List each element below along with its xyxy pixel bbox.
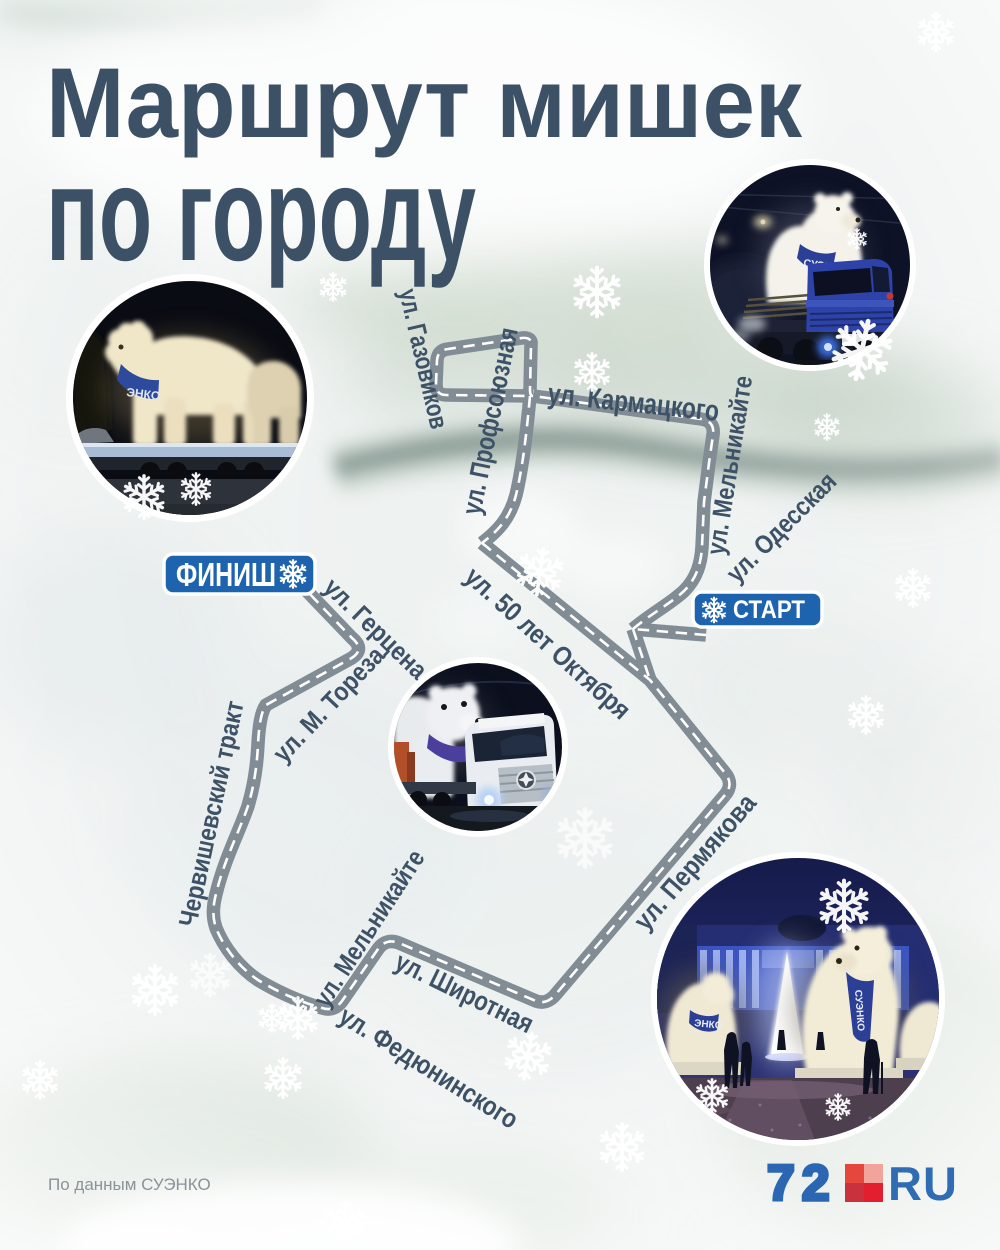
- svg-text:RU: RU: [888, 1157, 958, 1210]
- svg-text:По данным СУЭНКО: По данным СУЭНКО: [48, 1175, 211, 1194]
- svg-text:ФИНИШ: ФИНИШ: [176, 556, 276, 593]
- svg-text:72: 72: [767, 1155, 837, 1211]
- svg-text:СТАРТ: СТАРТ: [733, 596, 805, 624]
- svg-text:по городу: по городу: [46, 140, 476, 289]
